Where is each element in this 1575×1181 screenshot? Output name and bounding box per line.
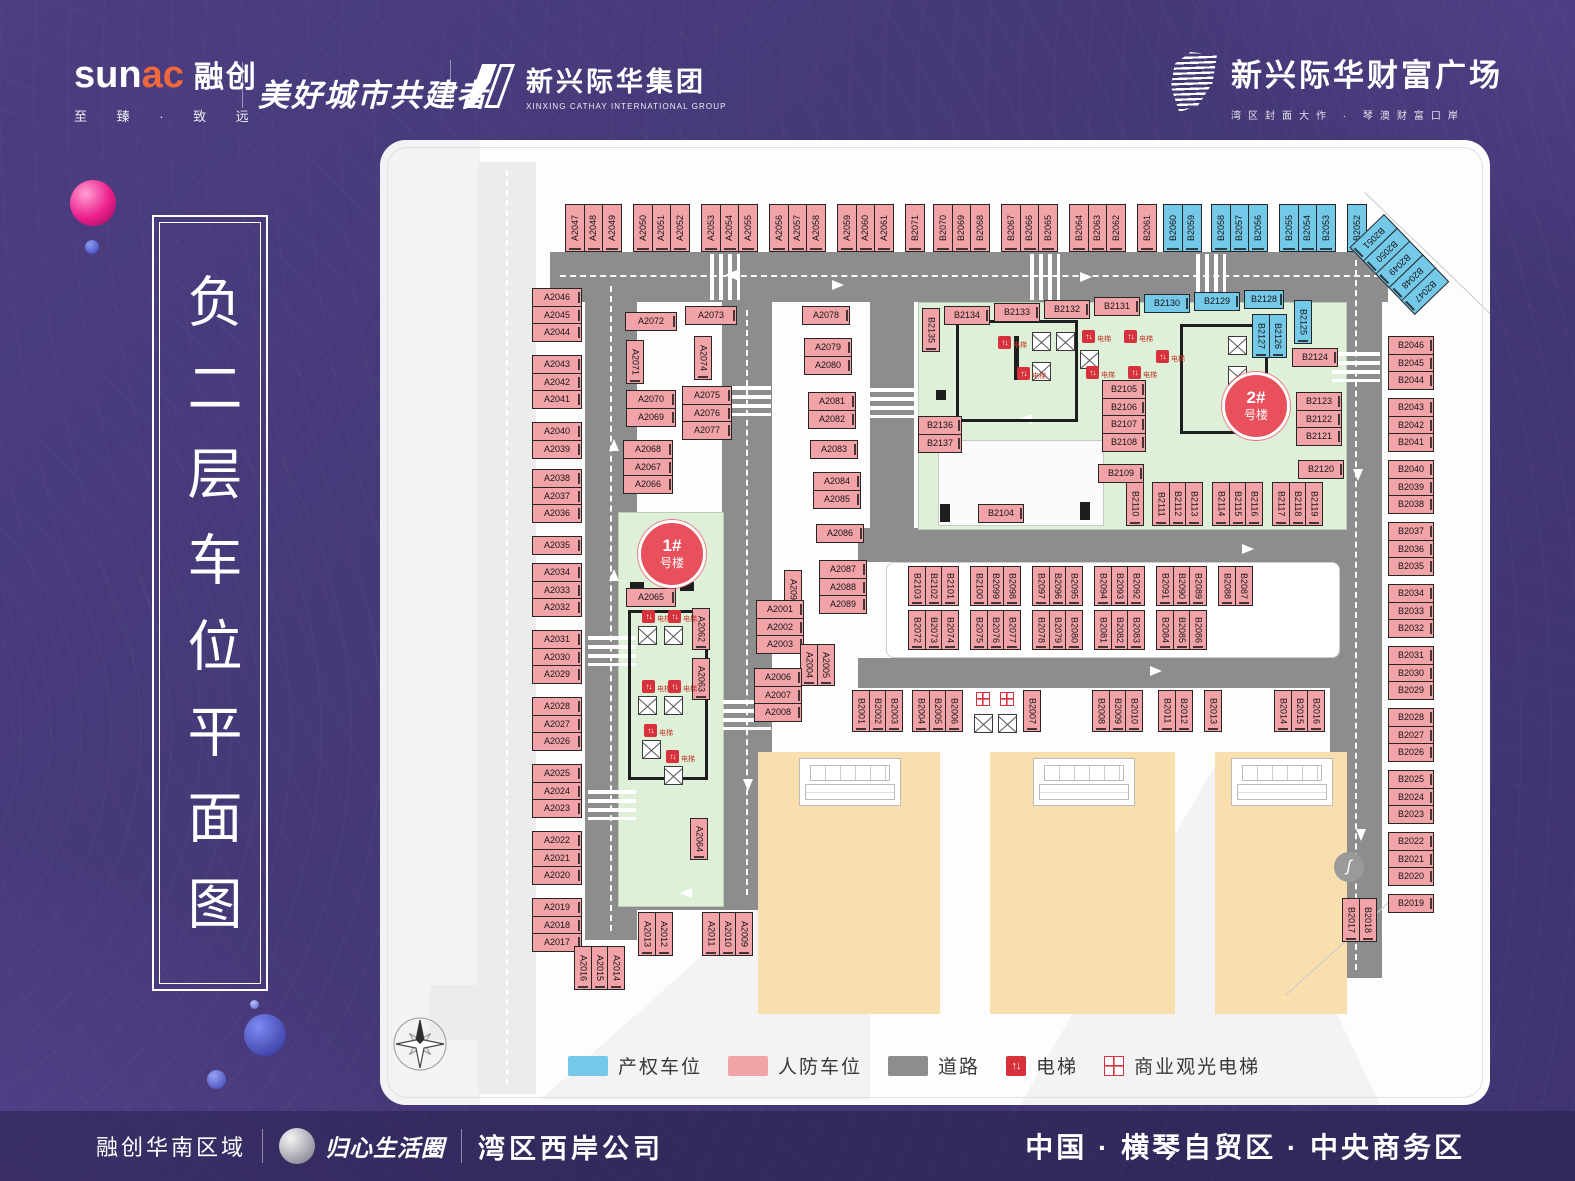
footer-location: 中国 · 横琴自贸区 · 中央商务区	[1025, 1111, 1465, 1181]
elevator-shaft-icon	[974, 714, 993, 733]
legend-swatch	[888, 1056, 928, 1076]
parking-spot: A2009	[735, 912, 753, 956]
parking-spot: A2020	[532, 866, 582, 885]
parking-spot: A2065	[626, 588, 676, 607]
parking-spot: A2079	[804, 338, 852, 357]
parking-spot: B2114	[1212, 482, 1230, 526]
parking-spot: B2110	[1126, 482, 1144, 526]
parking-spot: B2130	[1144, 294, 1190, 313]
sunac-cn-label: 融创	[194, 52, 258, 96]
compass-icon	[392, 1016, 448, 1077]
parking-spot: A2058	[806, 204, 826, 252]
parking-spot: A2053	[701, 204, 721, 252]
parking-spot: B2034	[1388, 584, 1434, 603]
parking-spot: B2012	[1175, 690, 1193, 732]
parking-spot: B2062	[1106, 204, 1126, 252]
parking-spot: B2063	[1088, 204, 1108, 252]
parking-spot: A2033	[532, 581, 582, 600]
parking-spot: B2001	[852, 690, 870, 732]
parking-spot: A2006	[754, 668, 802, 687]
parking-spot: A2039	[532, 440, 582, 459]
parking-spot: A2052	[670, 204, 690, 252]
elevator-label: 电梯	[1013, 342, 1027, 350]
city-slogan: 美好城市共建者	[258, 70, 489, 115]
footer-divider	[461, 1129, 462, 1163]
page-title-box: 负二层车位平面图	[152, 215, 268, 991]
parking-spot: B2054	[1298, 204, 1318, 252]
parking-spot: B2103	[908, 566, 926, 606]
legend-item: 产权车位	[568, 1052, 702, 1079]
parking-spot: A2002	[756, 618, 804, 637]
parking-spot: B2075	[970, 610, 988, 650]
sightseeing-elevator-icon	[1000, 692, 1014, 706]
parking-spot: A2023	[532, 799, 582, 818]
parking-spot: B2015	[1291, 690, 1309, 732]
parking-spot: A2046	[532, 288, 582, 307]
parking-spot: B2125	[1294, 300, 1312, 344]
lane-line	[560, 275, 1380, 277]
road-arrow-icon	[743, 779, 753, 791]
parking-spot: A2034	[532, 563, 582, 582]
parking-spot: A2081	[808, 392, 856, 411]
elevator-label: 电梯	[1097, 336, 1111, 344]
parking-spot: B2109	[1098, 464, 1144, 483]
legend-label: 道路	[938, 1052, 980, 1079]
parking-spot: A2048	[584, 204, 604, 252]
parking-spot: B2117	[1272, 482, 1290, 526]
parking-spot: A2014	[607, 946, 625, 990]
elevator: ↑↓电梯	[668, 680, 697, 694]
parking-spot: A2027	[532, 715, 582, 734]
elevator-icon: ↑↓	[642, 680, 655, 693]
legend-label: 电梯	[1036, 1052, 1078, 1079]
parking-spot: A2057	[788, 204, 808, 252]
parking-spot: B2066	[1020, 204, 1040, 252]
elevator-shaft-icon	[664, 766, 683, 785]
loading-dock	[1033, 758, 1135, 806]
parking-spot: A2025	[532, 764, 582, 783]
parking-spot: B2123	[1296, 392, 1342, 411]
parking-spot: B2077	[1003, 610, 1021, 650]
elevator-icon: ↑↓	[668, 610, 681, 623]
parking-spot: A2049	[602, 204, 622, 252]
parking-spot: B2023	[1388, 805, 1434, 824]
parking-spot: B2087	[1235, 566, 1253, 606]
parking-spot: A2061	[874, 204, 894, 252]
parking-spot: B2044	[1388, 371, 1434, 390]
parking-spot: A2016	[574, 946, 592, 990]
parking-spot: A2021	[532, 849, 582, 868]
parking-spot: B2076	[987, 610, 1005, 650]
project-logo: 新兴际华财富广场 湾区封面大作 · 琴澳财富口岸	[1171, 50, 1503, 122]
parking-spot: B2135	[922, 308, 940, 352]
parking-spot: B2033	[1388, 602, 1434, 621]
parking-spot: B2131	[1094, 297, 1140, 316]
parking-spot: B2058	[1211, 204, 1231, 252]
elevator: ↑↓电梯	[1082, 330, 1111, 344]
elevator-label: 电梯	[683, 686, 697, 694]
parking-spot: A2066	[623, 475, 673, 494]
elevator: ↑↓电梯	[998, 336, 1027, 350]
parking-spot: A2029	[532, 665, 582, 684]
sunac-wordmark: sunac	[74, 56, 184, 94]
legend-item: 人防车位	[728, 1052, 862, 1079]
parking-spot: B2126	[1269, 314, 1287, 358]
decor-sphere-blue-small	[207, 1070, 226, 1089]
parking-spot: A2074	[694, 336, 712, 380]
building-badge: 2#号楼	[1222, 372, 1290, 440]
parking-spot: B2116	[1245, 482, 1263, 526]
parking-spot: B2136	[918, 416, 962, 435]
parking-spot: B2037	[1388, 522, 1434, 541]
parking-spot: B2071	[905, 204, 925, 252]
parking-spot: A2064	[690, 818, 708, 860]
elevator-icon: ↑↓	[1006, 1056, 1026, 1076]
parking-spot: B2095	[1065, 566, 1083, 606]
crosswalk	[1030, 254, 1060, 300]
parking-spot: A2068	[623, 440, 673, 459]
parking-spot: A2041	[532, 390, 582, 409]
parking-spot: A2067	[623, 458, 673, 477]
elevator-shaft-icon	[642, 740, 661, 759]
parking-spot: A2004	[800, 644, 818, 686]
parking-spot: A2059	[837, 204, 857, 252]
parking-spot: B2056	[1248, 204, 1268, 252]
parking-spot: A2082	[808, 410, 856, 429]
parking-spot: B2009	[1109, 690, 1127, 732]
parking-spot: B2021	[1388, 850, 1434, 869]
parking-spot: B2060	[1163, 204, 1183, 252]
road-arrow-icon	[832, 280, 844, 290]
parking-spot: A2019	[532, 898, 582, 917]
elevator-icon: ↑↓	[668, 680, 681, 693]
parking-spot: B2102	[925, 566, 943, 606]
road-arrow-icon	[1242, 544, 1254, 554]
road-arrow-icon	[725, 270, 737, 280]
road-arrow-icon	[1150, 666, 1162, 676]
footer-company: 湾区西岸公司	[478, 1127, 664, 1166]
parking-spot: B2080	[1065, 610, 1083, 650]
lane-line	[506, 170, 508, 1085]
parking-spot: B2134	[944, 306, 990, 325]
parking-spot: A2056	[769, 204, 789, 252]
dock-detail	[1237, 784, 1327, 800]
parking-spot: B2003	[885, 690, 903, 732]
parking-spot: A2047	[565, 204, 585, 252]
elevator-label: 电梯	[683, 616, 697, 624]
structure-column	[936, 390, 946, 400]
parking-spot: A2037	[532, 487, 582, 506]
brand-circle-icon	[279, 1128, 315, 1164]
parking-spot: B2088	[1218, 566, 1236, 606]
parking-spot: B2119	[1305, 482, 1323, 526]
parking-spot: B2079	[1049, 610, 1067, 650]
dock-detail	[1044, 765, 1124, 781]
parking-spot: B2128	[1244, 290, 1284, 309]
parking-spot: B2112	[1169, 482, 1187, 526]
sunac-logo: sunac 融创 至 臻 · 致 远	[74, 52, 262, 125]
dock-detail	[1242, 765, 1322, 781]
elevator-shaft-icon	[1032, 332, 1051, 351]
elevator: ↑↓电梯	[1017, 367, 1046, 381]
parking-spot: A2024	[532, 782, 582, 801]
parking-spot: B2073	[925, 610, 943, 650]
parking-spot: A2007	[754, 686, 802, 705]
parking-spot: B2094	[1094, 566, 1112, 606]
group-name-cn: 新兴际华集团	[526, 60, 727, 99]
parking-spot: B2107	[1102, 415, 1146, 434]
road-segment	[858, 528, 1382, 562]
elevator: ↑↓电梯	[1124, 330, 1153, 344]
parking-spot: B2122	[1296, 410, 1342, 429]
parking-spot: B2057	[1230, 204, 1250, 252]
parking-spot: B2024	[1388, 788, 1434, 807]
elevator-label: 电梯	[1032, 373, 1046, 381]
parking-spot: B2028	[1388, 708, 1434, 727]
parking-spot: B2030	[1388, 664, 1434, 683]
crosswalk	[1332, 352, 1380, 382]
parking-spot: B2053	[1316, 204, 1336, 252]
parking-spot: B2084	[1156, 610, 1174, 650]
parking-spot: B2027	[1388, 726, 1434, 745]
parking-spot: B2067	[1001, 204, 1021, 252]
parking-spot: B2043	[1388, 398, 1434, 417]
parking-spot: B2121	[1296, 427, 1342, 446]
parking-spot: B2096	[1049, 566, 1067, 606]
parking-spot: B2013	[1204, 690, 1222, 732]
parking-spot: B2068	[970, 204, 990, 252]
parking-spot: B2118	[1289, 482, 1307, 526]
parking-spot: A2008	[754, 703, 802, 722]
elevator-icon: ↑↓	[1124, 330, 1137, 343]
decor-dot-blue	[85, 240, 99, 254]
parking-spot: B2007	[1023, 690, 1041, 732]
parking-spot: B2091	[1156, 566, 1174, 606]
sightseeing-elevator-icon	[976, 692, 990, 706]
parking-spot: B2016	[1307, 690, 1325, 732]
road-arrow-icon	[1353, 469, 1363, 481]
elevator-icon: ↑↓	[1086, 366, 1099, 379]
parking-spot: B2014	[1274, 690, 1292, 732]
parking-spot: A2043	[532, 355, 582, 374]
parking-spot: B2081	[1094, 610, 1112, 650]
parking-spot: A2011	[702, 912, 720, 956]
parking-spot: B2129	[1194, 292, 1240, 311]
parking-spot: B2069	[952, 204, 972, 252]
elevator: ↑↓电梯	[1156, 350, 1185, 364]
commercial-area	[1215, 752, 1347, 1014]
parking-spot: A2026	[532, 732, 582, 751]
elevator: ↑↓电梯	[644, 724, 673, 738]
parking-spot: A2005	[817, 644, 835, 686]
elevator-icon: ↑↓	[1017, 367, 1030, 380]
parking-spot: B2036	[1388, 540, 1434, 559]
elevator-icon: ↑↓	[1082, 330, 1095, 343]
sightseeing-elevator	[976, 692, 990, 706]
parking-spot: A2078	[802, 306, 850, 325]
parking-spot: A2044	[532, 323, 582, 342]
parking-spot: B2108	[1102, 433, 1146, 452]
decor-sphere-blue	[244, 1014, 286, 1056]
parking-spot: B2092	[1127, 566, 1145, 606]
parking-spot: A2076	[682, 404, 732, 423]
parking-spot: B2011	[1158, 690, 1176, 732]
parking-spot: B2097	[1032, 566, 1050, 606]
parking-spot: B2083	[1127, 610, 1145, 650]
parking-spot: A2089	[819, 595, 867, 614]
road-arrow-icon	[609, 439, 619, 451]
legend-swatch	[568, 1056, 608, 1076]
parking-spot: B2120	[1298, 460, 1344, 479]
header-divider	[242, 62, 243, 108]
parking-spot: B2026	[1388, 743, 1434, 762]
elevator-shaft-icon	[664, 626, 683, 645]
elevator: ↑↓电梯	[642, 680, 671, 694]
parking-spot: B2006	[945, 690, 963, 732]
parking-spot: B2086	[1189, 610, 1207, 650]
elevator-shaft-icon	[1228, 336, 1247, 355]
loading-dock	[799, 758, 901, 806]
elevator: ↑↓电梯	[666, 750, 695, 764]
structure-column	[1080, 502, 1090, 520]
parking-spot: A2013	[638, 912, 656, 956]
decor-dot-blue-tiny	[250, 1000, 259, 1009]
parking-spot: B2038	[1388, 495, 1434, 514]
legend-item: ↑↓电梯	[1006, 1052, 1078, 1079]
parking-spot: B2113	[1185, 482, 1203, 526]
parking-spot: A2085	[813, 490, 861, 509]
parking-spot: A2070	[626, 390, 676, 409]
parking-spot: B2127	[1252, 314, 1270, 358]
elevator-label: 电梯	[659, 730, 673, 738]
parking-spot: B2040	[1388, 460, 1434, 479]
parking-spot: B2074	[941, 610, 959, 650]
parking-spot: A2015	[591, 946, 609, 990]
xinxing-group-logo: 新兴际华集团 XINXING CATHAY INTERNATIONAL GROU…	[468, 60, 727, 111]
parking-spot: B2039	[1388, 478, 1434, 497]
parking-spot: A2012	[655, 912, 673, 956]
elevator-label: 电梯	[1171, 356, 1185, 364]
legend-label: 商业观光电梯	[1134, 1052, 1260, 1079]
parking-spot: B2111	[1152, 482, 1170, 526]
parking-spot: A2003	[756, 635, 804, 654]
parking-spot: B2105	[1102, 380, 1146, 399]
parking-spot: B2004	[912, 690, 930, 732]
elevator-shaft-icon	[664, 696, 683, 715]
footer-brand: 归心生活圈	[325, 1129, 445, 1163]
landmark-icon: ʃ	[1334, 852, 1364, 882]
road-segment	[858, 658, 1382, 688]
footer-region: 融创华南区域	[96, 1130, 246, 1162]
parking-spot: A2069	[626, 408, 676, 427]
elevator-shaft-icon	[1056, 332, 1075, 351]
parking-spot: A2040	[532, 422, 582, 441]
elevator-icon: ↑↓	[1128, 366, 1141, 379]
decor-sphere-pink	[70, 180, 116, 226]
elevator-icon: ↑↓	[642, 610, 655, 623]
header: sunac 融创 至 臻 · 致 远 美好城市共建者 新兴际华集团 XINXIN…	[0, 0, 1575, 140]
parking-spot: A2051	[652, 204, 672, 252]
parking-spot: B2008	[1092, 690, 1110, 732]
parking-spot: B2035	[1388, 557, 1434, 576]
loading-dock	[1231, 758, 1333, 806]
parking-spot: A2071	[626, 340, 644, 384]
parking-spot: A2073	[685, 306, 737, 325]
leaf-logo-icon	[1171, 52, 1217, 112]
elevator: ↑↓电梯	[1128, 366, 1157, 380]
parking-spot: B2090	[1173, 566, 1191, 606]
parking-spot: A2060	[856, 204, 876, 252]
page-title: 负二层车位平面图	[154, 217, 266, 989]
sunac-tagline: 至 臻 · 致 远	[74, 106, 262, 125]
parking-spot: B2100	[970, 566, 988, 606]
parking-spot: B2055	[1279, 204, 1299, 252]
footer: 融创华南区域 归心生活圈 湾区西岸公司 中国 · 横琴自贸区 · 中央商务区	[0, 1111, 1575, 1181]
parking-spot: A2030	[532, 648, 582, 667]
parking-spot: B2124	[1292, 348, 1338, 367]
road-arrow-icon	[1356, 829, 1366, 841]
dock-detail	[1039, 784, 1129, 800]
dock-detail	[810, 765, 890, 781]
parking-spot: A2035	[532, 536, 582, 555]
legend-item: 道路	[888, 1052, 980, 1079]
parking-spot: B2029	[1388, 681, 1434, 700]
elevator: ↑↓电梯	[1086, 366, 1115, 380]
parking-spot: B2072	[908, 610, 926, 650]
road-arrow-icon	[609, 569, 619, 581]
parking-spot: A2036	[532, 504, 582, 523]
parking-spot: B2098	[1003, 566, 1021, 606]
parking-spot: B2078	[1032, 610, 1050, 650]
parking-spot: B2133	[994, 303, 1040, 322]
parking-spot: A2083	[810, 440, 858, 459]
parking-spot: B2017	[1342, 898, 1360, 942]
parking-spot: B2132	[1044, 300, 1090, 319]
parking-spot: B2093	[1111, 566, 1129, 606]
parking-spot: B2137	[918, 434, 962, 453]
crosswalk	[588, 790, 636, 820]
commercial-area	[758, 752, 940, 1014]
group-name-en: XINXING CATHAY INTERNATIONAL GROUP	[526, 102, 727, 111]
parking-spot: B2070	[933, 204, 953, 252]
parking-spot: A2055	[738, 204, 758, 252]
parking-spot: B2061	[1137, 204, 1157, 252]
parking-spot: B2020	[1388, 867, 1434, 886]
parking-spot: B2059	[1182, 204, 1202, 252]
parking-spot: B2032	[1388, 619, 1434, 638]
road-arrow-icon	[1080, 272, 1092, 282]
parking-spot: B2106	[1102, 398, 1146, 417]
elevator: ↑↓电梯	[668, 610, 697, 624]
elevator-label: 电梯	[1139, 336, 1153, 344]
elevator: ↑↓电梯	[642, 610, 671, 624]
elevator-icon: ↑↓	[666, 750, 679, 763]
parking-spot: A2050	[633, 204, 653, 252]
elevator-icon: ↑↓	[644, 724, 657, 737]
legend-swatch	[728, 1056, 768, 1076]
parking-spot: B2042	[1388, 416, 1434, 435]
parking-spot: B2099	[987, 566, 1005, 606]
parking-spot: B2002	[869, 690, 887, 732]
plan-shading	[380, 140, 480, 1105]
project-subtitle: 湾区封面大作 · 琴澳财富口岸	[1231, 107, 1503, 122]
parking-spot: A2087	[819, 560, 867, 579]
parking-spot: B2019	[1388, 894, 1434, 913]
header-divider	[450, 60, 451, 110]
dock-detail	[805, 784, 895, 800]
legend: 产权车位人防车位道路↑↓电梯商业观光电梯	[568, 1052, 1260, 1079]
project-name: 新兴际华财富广场	[1231, 50, 1503, 95]
